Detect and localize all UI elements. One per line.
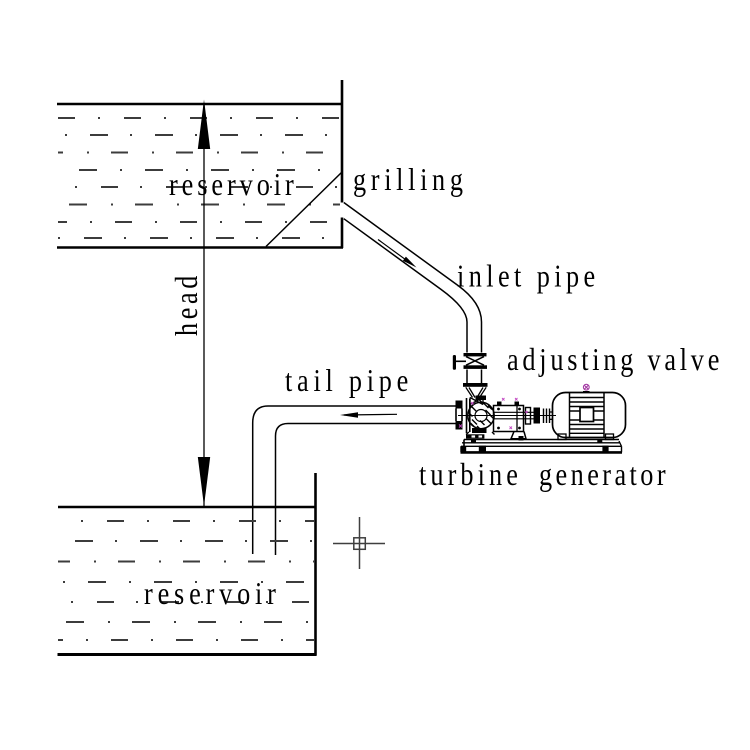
svg-text:reservoir: reservoir: [144, 577, 281, 612]
svg-text:reservoir: reservoir: [169, 168, 298, 203]
svg-text:grilling: grilling: [353, 163, 468, 198]
svg-text:adjusting valve: adjusting valve: [507, 343, 723, 378]
svg-text:generator: generator: [539, 458, 669, 493]
svg-text:tail pipe: tail pipe: [285, 364, 413, 399]
svg-text:inlet pipe: inlet pipe: [457, 259, 600, 294]
svg-text:turbine: turbine: [419, 458, 522, 493]
svg-text:head: head: [170, 272, 205, 336]
